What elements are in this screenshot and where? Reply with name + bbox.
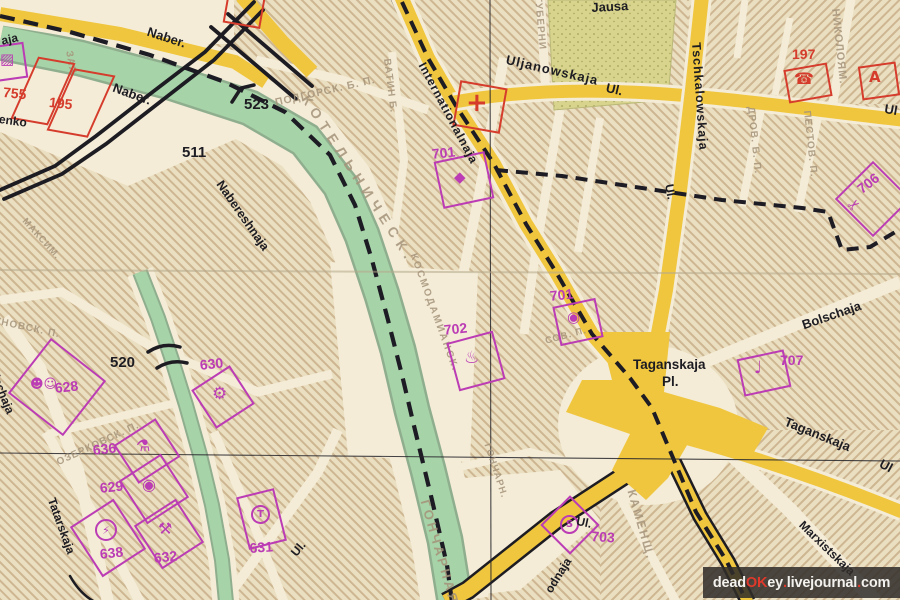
watermark: deadOKey.livejournal.com [703, 567, 900, 598]
fire-station-icon: A [869, 70, 881, 85]
tavern-icon: ♨ [464, 350, 479, 367]
marker-number-755: 755 [2, 84, 27, 102]
bridge-number-511: 511 [182, 144, 206, 161]
bridge-number-523: 523 [244, 96, 269, 113]
marker-number-197: 197 [792, 46, 815, 62]
marker-number-703: 703 [591, 528, 615, 546]
t-circle-icon: T [251, 505, 270, 524]
city-map: КОТЕЛЬНИЧЕСК. КОСМОДАМИАНСК. ГОНЧАРНАЯ Г… [0, 0, 900, 600]
street-label-jausa: Jausa [591, 0, 629, 15]
flask-icon: ⚗ [136, 438, 150, 454]
telephone-icon: ☎ [794, 71, 814, 87]
marker-number-702: 702 [443, 320, 468, 338]
street-label-ul-right-edge: Ul [883, 101, 898, 118]
marker-number-629: 629 [99, 478, 124, 496]
marker-number-701b: 701 [549, 286, 574, 304]
cinema-icon: ◆ [454, 170, 466, 185]
marker-number-195: 195 [48, 94, 73, 112]
hospital-cross-icon: + [466, 90, 488, 116]
lens-icon: ◉ [142, 477, 156, 493]
marker-number-632: 632 [153, 548, 178, 566]
partial-icon: ▨ [0, 52, 14, 67]
street-label-taganskaja-pl-1: Taganskaja [633, 357, 706, 372]
camera-icon: ◉ [567, 310, 580, 325]
workshop-icon: ⚒ [158, 521, 172, 537]
marker-number-631: 631 [249, 538, 273, 556]
bridge-number-520: 520 [110, 354, 135, 371]
watermark-text-red: OK [746, 575, 767, 591]
watermark-text: ey [767, 575, 783, 591]
street-label-ul-near-703: Ul. [575, 514, 593, 531]
marker-number-638: 638 [99, 544, 124, 562]
watermark-text: dead [713, 575, 746, 591]
boot-icon: ♩ [754, 360, 762, 377]
watermark-text: com [861, 575, 890, 591]
marker-number-630: 630 [199, 355, 224, 373]
street-label-tschkalowskaja-ul: Ul. [662, 183, 678, 201]
marker-number-628: 628 [54, 378, 79, 396]
gear-icon: ⚙ [212, 386, 227, 403]
marker-number-636: 636 [92, 440, 117, 458]
marker-number-707: 707 [780, 352, 803, 368]
marker-number-701a: 701 [431, 144, 456, 162]
lightning-icon: ⚡ [95, 519, 117, 541]
watermark-text: livejournal [787, 575, 857, 591]
street-label-taganskaja-pl-2: Pl. [662, 374, 679, 389]
